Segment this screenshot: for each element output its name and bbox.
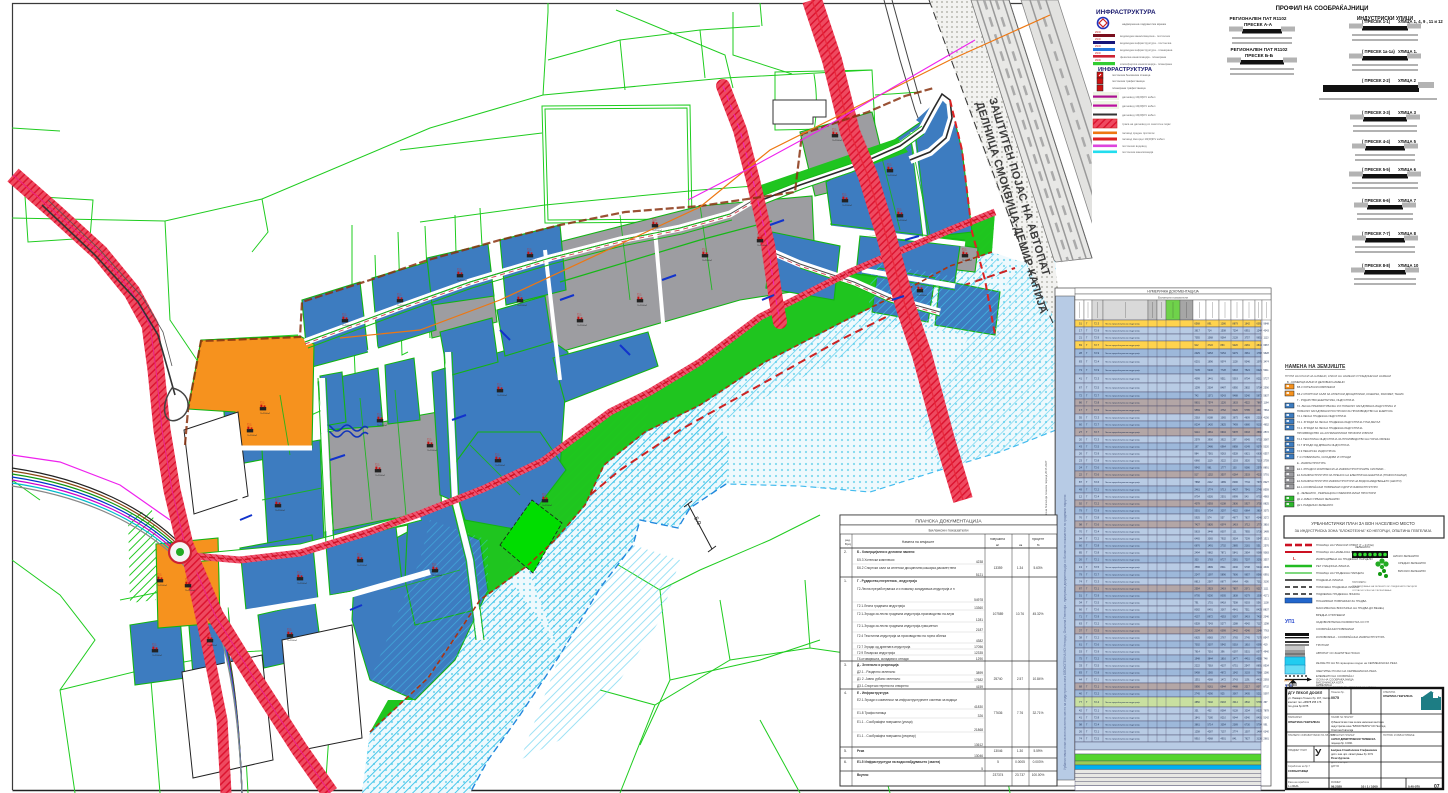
svg-text:6108: 6108 bbox=[1221, 503, 1227, 506]
svg-text:ДАТУМ: ДАТУМ bbox=[1331, 765, 1339, 768]
svg-text:гасовод среден притисок: гасовод среден притисок bbox=[1122, 131, 1155, 135]
svg-text:5547: 5547 bbox=[1257, 538, 1263, 541]
svg-text:4899: 4899 bbox=[1208, 566, 1214, 569]
svg-text:3024: 3024 bbox=[1233, 538, 1239, 541]
svg-text:Г2.1. ЗГРАДИ ЗА ЛЕСНА ГРАДЕЖНА: Г2.1. ЗГРАДИ ЗА ЛЕСНА ГРАДЕЖНА ИНДУСТРИЈ… bbox=[1297, 420, 1380, 424]
svg-text:Г2.7: Г2.7 bbox=[1094, 394, 1100, 398]
svg-text:8999: 8999 bbox=[1233, 496, 1239, 499]
svg-text:%: % bbox=[1037, 543, 1040, 547]
svg-text:4349: 4349 bbox=[1264, 566, 1270, 569]
svg-text:5727: 5727 bbox=[1264, 378, 1270, 381]
svg-text:4652: 4652 bbox=[1264, 424, 1270, 427]
svg-text:Г2.1: Г2.1 bbox=[832, 129, 837, 132]
svg-text:8891: 8891 bbox=[1257, 665, 1263, 668]
svg-text:2533: 2533 bbox=[1245, 474, 1251, 477]
svg-text:СОРАБОТНИЦИ: СОРАБОТНИЦИ bbox=[1288, 769, 1308, 773]
svg-text:1191: 1191 bbox=[1245, 679, 1251, 682]
svg-text:5: 5 bbox=[981, 767, 983, 771]
svg-text:9044: 9044 bbox=[1233, 717, 1239, 720]
svg-text:17056: 17056 bbox=[974, 645, 983, 649]
svg-text:6621: 6621 bbox=[1245, 453, 1251, 456]
svg-text:1774: 1774 bbox=[1208, 489, 1214, 492]
svg-text:фекална канализација - планира: фекална канализација - планирана bbox=[1120, 55, 1166, 59]
svg-text:( ПРЕСЕК 8-8): ( ПРЕСЕК 8-8) bbox=[1362, 263, 1391, 268]
svg-text:1030: 1030 bbox=[1257, 595, 1263, 598]
svg-text:Лесна преработувачка индустриј: Лесна преработувачка индустрија bbox=[1105, 595, 1140, 598]
svg-text:3899: 3899 bbox=[976, 671, 983, 675]
svg-text:8825: 8825 bbox=[1264, 503, 1270, 506]
svg-text:лиценца бр. 0.0321: лиценца бр. 0.0321 bbox=[1331, 742, 1353, 745]
svg-text:Соработник на бр.7: Соработник на бр.7 bbox=[1288, 765, 1310, 768]
svg-text:0.0005: 0.0005 bbox=[1015, 760, 1025, 764]
svg-text:П=2500м²: П=2500м² bbox=[757, 244, 767, 247]
svg-text:Г2.5: Г2.5 bbox=[1094, 565, 1100, 569]
svg-text:Г2.1. ЗГРАДИ ЗА ЛЕСНА ГРАДЕЖНА: Г2.1. ЗГРАДИ ЗА ЛЕСНА ГРАДЕЖНА ИНДУСТРИЈ… bbox=[1297, 426, 1363, 430]
svg-text:1286: 1286 bbox=[1264, 672, 1270, 675]
svg-text:7763: 7763 bbox=[1264, 630, 1270, 633]
svg-text:Г2.9: Г2.9 bbox=[1094, 615, 1100, 619]
svg-text:ПРОФИЛ НА СООБРАЌАЈНИЦИ: ПРОФИЛ НА СООБРАЌАЈНИЦИ bbox=[1276, 4, 1369, 12]
svg-text:7343: 7343 bbox=[1208, 623, 1214, 626]
svg-text:6557: 6557 bbox=[1264, 453, 1270, 456]
svg-text:6636: 6636 bbox=[1257, 453, 1263, 456]
svg-text:402: 402 bbox=[1208, 710, 1213, 713]
svg-text:Г2.1: Г2.1 bbox=[1094, 730, 1100, 734]
svg-text:Г2.6: Г2.6 bbox=[1094, 643, 1100, 647]
svg-text:8672: 8672 bbox=[1208, 616, 1214, 619]
svg-text:1783: 1783 bbox=[1208, 559, 1214, 562]
svg-text:6964: 6964 bbox=[1221, 446, 1227, 449]
svg-text:1113: 1113 bbox=[1264, 337, 1270, 340]
svg-text:4042: 4042 bbox=[1245, 623, 1251, 626]
svg-text:32.71%: 32.71% bbox=[1033, 711, 1044, 715]
svg-text:постоечки водовод: постоечки водовод bbox=[1122, 144, 1147, 148]
svg-text:АВТОПАТ СО ЗАШТИТЕН ПОЈАС: АВТОПАТ СО ЗАШТИТЕН ПОЈАС bbox=[1316, 651, 1360, 655]
svg-text:7117: 7117 bbox=[1257, 623, 1263, 626]
svg-text:1.34: 1.34 bbox=[1017, 566, 1023, 570]
svg-text:Лесна преработувачка индустриј: Лесна преработувачка индустрија bbox=[1105, 503, 1140, 506]
svg-text:П=2500м²: П=2500м² bbox=[527, 259, 537, 262]
svg-text:ПЛАНЕРИ / ИЗРАБОТУВАЧИ НА ПЛАН: ПЛАНЕРИ / ИЗРАБОТУВАЧИ НА ПЛАНОТ bbox=[1288, 734, 1335, 737]
svg-text:Г2-Лесна преработувачка и и по: Г2-Лесна преработувачка и и помалку зага… bbox=[857, 587, 955, 591]
svg-text:Роза Нуртеска: Роза Нуртеска bbox=[1331, 756, 1350, 760]
svg-text:5896: 5896 bbox=[1221, 574, 1227, 577]
svg-text:1696: 1696 bbox=[1208, 361, 1214, 364]
svg-text:ОВЛАСТЕН ПЛАНЕР: ОВЛАСТЕН ПЛАНЕР bbox=[1331, 734, 1355, 737]
svg-text:Г2.3: Г2.3 bbox=[1094, 322, 1100, 326]
svg-text:Лесна преработувачка индустриј: Лесна преработувачка индустрија bbox=[1105, 369, 1140, 372]
svg-text:УЛИЦА 1.: УЛИЦА 1. bbox=[1398, 49, 1417, 54]
svg-text:Б - КОМЕРЦИЈАЛНИ И ДЕЛОВНИ Н: Б - КОМЕРЦИЈАЛНИ И ДЕЛОВНИ НАМЕНИ bbox=[1287, 380, 1345, 384]
svg-text:131: 131 bbox=[1233, 531, 1238, 534]
svg-text:П=2500м²: П=2500м² bbox=[842, 204, 852, 207]
svg-text:103: 103 bbox=[1233, 467, 1238, 470]
svg-text:Г2.4: Г2.4 bbox=[1094, 700, 1100, 704]
svg-text:557: 557 bbox=[1221, 517, 1226, 520]
svg-text:9200: 9200 bbox=[1208, 595, 1214, 598]
svg-text:17682: 17682 bbox=[974, 678, 983, 682]
svg-text:13360: 13360 bbox=[974, 606, 983, 610]
svg-text:4809: 4809 bbox=[1245, 417, 1251, 420]
svg-text:Лесна преработувачка индустриј: Лесна преработувачка индустрија bbox=[1105, 731, 1140, 734]
svg-text:9378: 9378 bbox=[1257, 446, 1263, 449]
svg-text:4762: 4762 bbox=[1221, 409, 1227, 412]
svg-text:3861: 3861 bbox=[1195, 724, 1201, 727]
svg-text:3367: 3367 bbox=[1221, 609, 1227, 612]
svg-text:8045: 8045 bbox=[1245, 439, 1251, 442]
svg-text:13046: 13046 bbox=[994, 749, 1003, 753]
svg-text:2281: 2281 bbox=[1245, 344, 1251, 347]
svg-text:8754: 8754 bbox=[1195, 496, 1201, 499]
svg-text:ЗАШТИТЕН ПОЈАС НА СЕРМЕНИНСКА: ЗАШТИТЕН ПОЈАС НА СЕРМЕНИНСКА РЕКА bbox=[1316, 669, 1377, 673]
svg-text:13046: 13046 bbox=[974, 754, 983, 758]
svg-text:1642: 1642 bbox=[1245, 323, 1251, 326]
svg-text:3014: 3014 bbox=[1233, 701, 1239, 704]
svg-text:П=2500м²: П=2500м² bbox=[577, 324, 587, 327]
svg-text:далновод 10(20)KV кабел: далновод 10(20)KV кабел bbox=[1122, 104, 1156, 108]
svg-text:УЛИЦА 5: УЛИЦА 5 bbox=[1398, 139, 1417, 144]
svg-text:Г2.3: Г2.3 bbox=[1094, 416, 1100, 420]
svg-text:Г2.2: Г2.2 bbox=[1094, 488, 1100, 492]
svg-text:Општина Гевгелија: Општина Гевгелија bbox=[1331, 729, 1354, 732]
svg-text:Г2.1: Г2.1 bbox=[495, 454, 500, 457]
svg-text:8534: 8534 bbox=[1264, 665, 1270, 668]
svg-text:Г2.1: Г2.1 bbox=[497, 384, 502, 387]
svg-text:1007: 1007 bbox=[1245, 731, 1251, 734]
svg-text:9386: 9386 bbox=[1245, 467, 1251, 470]
svg-text:8732: 8732 bbox=[1264, 686, 1270, 689]
svg-text:Лесна преработувачка индустриј: Лесна преработувачка индустрија bbox=[1105, 481, 1140, 484]
svg-text:РЕГИОНАЛЕН ПАТ R1102: РЕГИОНАЛЕН ПАТ R1102 bbox=[1231, 47, 1288, 52]
svg-text:Г2.1: Г2.1 bbox=[297, 572, 302, 575]
svg-text:8813: 8813 bbox=[1195, 581, 1201, 584]
svg-text:5246: 5246 bbox=[1208, 369, 1214, 372]
svg-text:Д1 2 -Јавно урбано зеленило: Д1 2 -Јавно урбано зеленило bbox=[857, 677, 900, 681]
svg-text:НУМЕРИЧКА ДОКУМЕНТАЦИЈА: НУМЕРИЧКА ДОКУМЕНТАЦИЈА bbox=[1147, 290, 1199, 294]
svg-text:7932: 7932 bbox=[1221, 538, 1227, 541]
svg-text:П=2500м²: П=2500м² bbox=[432, 574, 442, 577]
svg-text:54978: 54978 bbox=[974, 598, 983, 602]
svg-text:Е1.8 Трафостаница: Е1.8 Трафостаница bbox=[857, 711, 886, 715]
svg-text:Лесна преработувачка индустриј: Лесна преработувачка индустрија bbox=[1105, 409, 1140, 412]
svg-text:469: 469 bbox=[1257, 409, 1262, 412]
svg-text:8311: 8311 bbox=[1221, 566, 1227, 569]
svg-text:Лесна преработувачка индустриј: Лесна преработувачка индустрија bbox=[1105, 574, 1140, 577]
svg-text:1371: 1371 bbox=[1208, 395, 1214, 398]
svg-text:Лесна преработувачка индустриј: Лесна преработувачка индустрија bbox=[1105, 323, 1140, 326]
svg-text:Лесна преработувачка индустриј: Лесна преработувачка индустрија bbox=[1105, 337, 1140, 340]
svg-text:1633: 1633 bbox=[1233, 402, 1239, 405]
svg-text:7018: 7018 bbox=[1208, 665, 1214, 668]
svg-text:Лесна преработувачка индустриј: Лесна преработувачка индустрија bbox=[1105, 361, 1140, 364]
svg-text:Г2.8: Г2.8 bbox=[1094, 716, 1100, 720]
svg-text:Лесна преработувачка индустриј: Лесна преработувачка индустрија bbox=[1105, 637, 1140, 640]
svg-text:6676: 6676 bbox=[1195, 545, 1201, 548]
svg-text:Г2.1: Г2.1 bbox=[917, 284, 922, 287]
svg-text:П=2500м²: П=2500м² bbox=[887, 174, 897, 177]
svg-text:7002: 7002 bbox=[1195, 644, 1201, 647]
svg-text:8027: 8027 bbox=[1264, 481, 1270, 484]
svg-text:Г2.1: Г2.1 bbox=[842, 194, 847, 197]
svg-text:Лесна преработувачка индустриј: Лесна преработувачка индустрија bbox=[1105, 330, 1140, 333]
svg-text:УП1: УП1 bbox=[1285, 619, 1295, 625]
svg-text:5794: 5794 bbox=[1257, 724, 1263, 727]
svg-text:748: 748 bbox=[1264, 658, 1269, 661]
svg-text:1042: 1042 bbox=[1233, 672, 1239, 675]
svg-text:Г2.2: Г2.2 bbox=[1094, 502, 1100, 506]
svg-text:6095: 6095 bbox=[1257, 644, 1263, 647]
svg-text:3222: 3222 bbox=[1221, 460, 1227, 463]
svg-text:Лесна преработувачка индустриј: Лесна преработувачка индустрија bbox=[1105, 424, 1140, 427]
svg-text:5942: 5942 bbox=[1221, 644, 1227, 647]
svg-text:1773: 1773 bbox=[1257, 524, 1263, 527]
svg-text:Г2.7 ЗГРАДИ ОД ДРВНАТА ИНДУСТР: Г2.7 ЗГРАДИ ОД ДРВНАТА ИНДУСТРИЈА bbox=[1297, 443, 1350, 447]
svg-text:Е2.1 ЗГРАДИ И КОМПЛЕКСИ НА ИНФ: Е2.1 ЗГРАДИ И КОМПЛЕКСИ НА ИНФРАСТРУКТУР… bbox=[1297, 467, 1386, 471]
svg-text:2825: 2825 bbox=[1221, 424, 1227, 427]
svg-text:Г2.1: Г2.1 bbox=[1094, 587, 1100, 591]
svg-text:6540: 6540 bbox=[1245, 717, 1251, 720]
svg-text:8704: 8704 bbox=[1245, 378, 1251, 381]
svg-text:Г2.1: Г2.1 bbox=[1094, 678, 1100, 682]
svg-text:3103: 3103 bbox=[1245, 672, 1251, 675]
svg-text:4099: 4099 bbox=[1195, 378, 1201, 381]
svg-text:Г2.1: Г2.1 bbox=[702, 249, 707, 252]
svg-text:5: 5 bbox=[997, 760, 999, 764]
svg-text:7857: 7857 bbox=[1233, 588, 1239, 591]
svg-text:6.: 6. bbox=[844, 760, 847, 764]
svg-text:П=2500м²: П=2500м² bbox=[962, 259, 972, 262]
svg-text:Билјана Стамболиска Стефановск: Билјана Стамболиска Стефановска bbox=[1331, 748, 1377, 752]
svg-text:П=2500м²: П=2500м² bbox=[157, 584, 167, 587]
svg-text:Г2.1: Г2.1 bbox=[887, 164, 892, 167]
svg-text:3844: 3844 bbox=[1208, 658, 1214, 661]
svg-text:2112: 2112 bbox=[1208, 481, 1214, 484]
svg-text:4.: 4. bbox=[844, 691, 847, 695]
svg-text:9862: 9862 bbox=[1208, 552, 1214, 555]
svg-text:Урбанистички план за вон насел: Урбанистички план за вон населено место … bbox=[1331, 721, 1384, 724]
svg-text:333: 333 bbox=[1195, 559, 1200, 562]
svg-text:Д - Зеленило и рекреација: Д - Зеленило и рекреација bbox=[857, 663, 899, 667]
svg-text:891: 891 bbox=[1208, 323, 1213, 326]
svg-text:Лесна преработувачка индустриј: Лесна преработувачка индустрија bbox=[1105, 453, 1140, 456]
svg-text:ВИСОКО ЗЕЛЕНИЛО: ВИСОКО ЗЕЛЕНИЛО bbox=[1398, 569, 1427, 573]
svg-text:1111: 1111 bbox=[1264, 588, 1269, 591]
svg-text:Б6.2 СПОРТСКИ САЛИ ЗА АТЛЕТСКИ: Б6.2 СПОРТСКИ САЛИ ЗА АТЛЕТСКИ ДИСЦИПЛИН… bbox=[1297, 392, 1404, 396]
svg-text:2128: 2128 bbox=[1233, 337, 1239, 340]
svg-text:09.2020: 09.2020 bbox=[1331, 785, 1342, 789]
svg-text:ПОМАЛКУ ЗАГАДУВАЧКИ ПОСТРОЈКИ: ПОМАЛКУ ЗАГАДУВАЧКИ ПОСТРОЈКИ ЗА ПРОИЗВО… bbox=[1297, 409, 1393, 413]
svg-text:Г2.1: Г2.1 bbox=[427, 439, 432, 442]
svg-text:419: 419 bbox=[1264, 644, 1269, 647]
svg-text:3617: 3617 bbox=[1195, 330, 1201, 333]
svg-text:1551: 1551 bbox=[1195, 679, 1201, 682]
svg-text:Г2.4: Г2.4 bbox=[1094, 495, 1100, 499]
svg-text:3880: 3880 bbox=[1257, 431, 1263, 434]
svg-text:297: 297 bbox=[1233, 439, 1238, 442]
svg-text:6528: 6528 bbox=[1195, 623, 1201, 626]
svg-text:7427: 7427 bbox=[1195, 524, 1201, 527]
svg-text:СООБРАЌАЈНИ ПОВРШИНИ: СООБРАЌАЈНИ ПОВРШИНИ bbox=[1316, 627, 1354, 631]
svg-text:2486: 2486 bbox=[1208, 446, 1214, 449]
svg-text:5277: 5277 bbox=[1221, 623, 1227, 626]
svg-text:4159: 4159 bbox=[976, 685, 983, 689]
svg-text:ЗАДОВОЛИТЕЛНА РАЗРАБОТКА СО УП: ЗАДОВОЛИТЕЛНА РАЗРАБОТКА СО УП bbox=[1316, 620, 1369, 624]
svg-text:1244: 1244 bbox=[1257, 330, 1263, 333]
svg-text:2093: 2093 bbox=[1264, 679, 1270, 682]
svg-text:Лесна преработувачка индустриј: Лесна преработувачка индустрија bbox=[1105, 352, 1140, 355]
svg-text:ВРЕДНА СТРАТЕШКИ: ВРЕДНА СТРАТЕШКИ bbox=[1316, 613, 1345, 617]
svg-text:( ПРЕСЕК 2-2): ( ПРЕСЕК 2-2) bbox=[1362, 78, 1391, 83]
svg-text:Г2.2: Г2.2 bbox=[1094, 692, 1100, 696]
svg-text:Г2.3: Г2.3 bbox=[1094, 580, 1100, 584]
svg-text:Г2.1.ЛЕСНА ГРАДЕЖНА ИНДУСТРИЈА: Г2.1.ЛЕСНА ГРАДЕЖНА ИНДУСТРИЈА bbox=[1297, 414, 1346, 418]
svg-text:9657: 9657 bbox=[1245, 574, 1251, 577]
svg-text:Лесна преработувачка индустриј: Лесна преработувачка индустрија bbox=[1105, 658, 1140, 661]
svg-text:Г2.5: Г2.5 bbox=[1094, 629, 1100, 633]
svg-text:9910: 9910 bbox=[1195, 738, 1201, 741]
svg-text:5785: 5785 bbox=[1245, 409, 1251, 412]
svg-text:1290: 1290 bbox=[976, 657, 983, 661]
svg-text:Г2.1: Г2.1 bbox=[287, 629, 292, 632]
svg-text:3100: 3100 bbox=[1264, 581, 1270, 584]
svg-text:НИСКО ЗЕЛЕНИЛО: НИСКО ЗЕЛЕНИЛО bbox=[1393, 554, 1420, 558]
svg-text:4451: 4451 bbox=[1245, 658, 1251, 661]
svg-text:Г2.9 Пекарска индустрија: Г2.9 Пекарска индустрија bbox=[857, 651, 895, 655]
svg-text:4641: 4641 bbox=[1233, 609, 1239, 612]
svg-text:УЛИЦА 1, 4, 9 , 11 и 12: УЛИЦА 1, 4, 9 , 11 и 12 bbox=[1398, 19, 1443, 24]
svg-text:8083: 8083 bbox=[1208, 637, 1214, 640]
svg-text:Г2.9: Г2.9 bbox=[1094, 329, 1100, 333]
svg-text:3204: 3204 bbox=[1245, 710, 1251, 713]
svg-text:Лесна преработувачка индустриј: Лесна преработувачка индустрија bbox=[1105, 489, 1140, 492]
svg-text:ТРОТОАР: ТРОТОАР bbox=[1316, 643, 1329, 647]
svg-text:Г2.1: Г2.1 bbox=[527, 249, 532, 252]
svg-text:9220: 9220 bbox=[1233, 344, 1239, 347]
svg-text:4672: 4672 bbox=[1221, 672, 1227, 675]
svg-text:П=2500м²: П=2500м² bbox=[832, 139, 842, 142]
svg-text:Г2.7: Г2.7 bbox=[1094, 343, 1100, 347]
svg-text:4661: 4661 bbox=[1208, 431, 1214, 434]
svg-text:2029: 2029 bbox=[1195, 352, 1201, 355]
svg-text:Г2.4: Г2.4 bbox=[1094, 723, 1100, 727]
svg-text:СОГЛАСНО ЧЛЕН ЗА ОЗЕЛЕНУВАЊЕ: СОГЛАСНО ЧЛЕН ЗА ОЗЕЛЕНУВАЊЕ bbox=[1352, 589, 1392, 592]
svg-text:3136: 3136 bbox=[1257, 738, 1263, 741]
svg-text:2389: 2389 bbox=[1233, 724, 1239, 727]
svg-text:4555: 4555 bbox=[1257, 658, 1263, 661]
svg-text:1076: 1076 bbox=[1257, 361, 1263, 364]
svg-text:3.: 3. bbox=[844, 663, 847, 667]
svg-text:2630: 2630 bbox=[1208, 630, 1214, 633]
svg-text:5978: 5978 bbox=[1233, 431, 1239, 434]
svg-text:ПРЕСЕК Б-Б: ПРЕСЕК Б-Б bbox=[1245, 53, 1274, 58]
svg-text:Ø200: Ø200 bbox=[1095, 38, 1102, 41]
svg-text:Г2.5: Г2.5 bbox=[1094, 601, 1100, 605]
svg-text:9074: 9074 bbox=[1221, 361, 1227, 364]
svg-text:8384: 8384 bbox=[1221, 710, 1227, 713]
svg-text:100.00%: 100.00% bbox=[1032, 773, 1045, 777]
svg-text:П=2500м²: П=2500м² bbox=[152, 654, 162, 657]
svg-text:9569: 9569 bbox=[1195, 409, 1201, 412]
svg-text:3354: 3354 bbox=[1221, 724, 1227, 727]
svg-text:2219: 2219 bbox=[1257, 417, 1263, 420]
svg-text:3061: 3061 bbox=[1245, 352, 1251, 355]
svg-text:2461: 2461 bbox=[1195, 489, 1201, 492]
svg-text:841: 841 bbox=[1233, 738, 1238, 741]
svg-text:3900: 3900 bbox=[1208, 439, 1214, 442]
svg-text:Д1 2-ЈАВНО УРБАНО ЗЕЛЕНИЛО: Д1 2-ЈАВНО УРБАНО ЗЕЛЕНИЛО bbox=[1297, 497, 1340, 501]
svg-text:7524: 7524 bbox=[1245, 369, 1251, 372]
svg-text:3297: 3297 bbox=[1221, 510, 1227, 513]
svg-text:1128: 1128 bbox=[1233, 361, 1239, 364]
svg-text:МАКСИМАЛНА ВИСОЧИНА НА ГРАДБА: МАКСИМАЛНА ВИСОЧИНА НА ГРАДБА ДО ВЕНЕЦ bbox=[1316, 606, 1385, 610]
svg-text:77636: 77636 bbox=[994, 711, 1003, 715]
svg-text:8795: 8795 bbox=[1195, 595, 1201, 598]
svg-text:Г2.1: Г2.1 bbox=[962, 249, 967, 252]
svg-text:ПОДЗЕМНА ГРАДЕЖНА ЛИНИЈА: ПОДЗЕМНА ГРАДЕЖНА ЛИНИЈА bbox=[1316, 592, 1360, 596]
svg-text:Г2.1: Г2.1 bbox=[432, 564, 437, 567]
svg-text:1258: 1258 bbox=[1195, 731, 1201, 734]
svg-text:П=2500м²: П=2500м² bbox=[542, 504, 552, 507]
svg-text:Лесна преработувачка индустриј: Лесна преработувачка индустрија bbox=[1105, 402, 1140, 405]
svg-text:5240: 5240 bbox=[1245, 395, 1251, 398]
svg-text:9279: 9279 bbox=[1233, 352, 1239, 355]
svg-text:Лесна преработувачка индустриј: Лесна преработувачка индустрија bbox=[1105, 623, 1140, 626]
svg-text:Д2.1 - Разделно зеленило: Д2.1 - Разделно зеленило bbox=[857, 670, 896, 674]
svg-text:Фаза на изработка: Фаза на изработка bbox=[1288, 781, 1309, 784]
svg-text:П=2500м²: П=2500м² bbox=[375, 474, 385, 477]
svg-text:4940: 4940 bbox=[1264, 651, 1270, 654]
svg-text:2018: 2018 bbox=[1195, 417, 1201, 420]
svg-text:6091: 6091 bbox=[1257, 323, 1263, 326]
svg-text:ОПШТИНА ГЕВГЕЛИЈА: ОПШТИНА ГЕВГЕЛИЈА bbox=[1383, 694, 1413, 698]
svg-text:СРЕДНО ЗЕЛЕНИЛО: СРЕДНО ЗЕЛЕНИЛО bbox=[1398, 561, 1427, 565]
svg-text:УЛИЦА 3: УЛИЦА 3 bbox=[1398, 110, 1417, 115]
svg-text:2034: 2034 bbox=[1208, 387, 1214, 390]
svg-text:Лесна преработувачка индустриј: Лесна преработувачка индустрија bbox=[1105, 724, 1140, 727]
svg-text:1838: 1838 bbox=[1233, 595, 1239, 598]
svg-text:Г2.8: Г2.8 bbox=[1094, 544, 1100, 548]
svg-text:Лесна преработувачка индустриј: Лесна преработувачка индустрија bbox=[1105, 552, 1140, 555]
svg-text:4171: 4171 bbox=[1264, 595, 1270, 598]
svg-text:водоводна инфраструктура - пос: водоводна инфраструктура - постоечка bbox=[1120, 41, 1172, 45]
svg-text:7734: 7734 bbox=[1245, 481, 1251, 484]
svg-text:863: 863 bbox=[1221, 344, 1226, 347]
svg-text:4390: 4390 bbox=[1208, 693, 1214, 696]
svg-text:П=2500м²: П=2500м² bbox=[897, 219, 907, 222]
svg-text:4353: 4353 bbox=[1221, 616, 1227, 619]
svg-text:2501: 2501 bbox=[1221, 496, 1227, 499]
svg-text:5142: 5142 bbox=[1264, 717, 1270, 720]
svg-text:107589: 107589 bbox=[993, 612, 1004, 616]
svg-text:9488: 9488 bbox=[1233, 395, 1239, 398]
svg-text:714: 714 bbox=[1208, 330, 1213, 333]
svg-text:7970: 7970 bbox=[1257, 481, 1263, 484]
svg-text:Лесна преработувачка индустриј: Лесна преработувачка индустрија bbox=[1105, 545, 1140, 548]
svg-text:8752: 8752 bbox=[1257, 496, 1263, 499]
svg-text:УЛИЦА 10: УЛИЦА 10 bbox=[1398, 263, 1419, 268]
svg-text:Г2.1: Г2.1 bbox=[457, 269, 462, 272]
svg-text:8211: 8211 bbox=[1257, 378, 1263, 381]
svg-text:167: 167 bbox=[1195, 446, 1200, 449]
svg-text:Лесна преработувачка индустриј: Лесна преработувачка индустрија bbox=[1105, 460, 1140, 463]
svg-text:3922: 3922 bbox=[1221, 439, 1227, 442]
svg-text:ИНФРАСТРУКТУРА: ИНФРАСТРУКТУРА bbox=[1096, 9, 1156, 16]
svg-text:326: 326 bbox=[978, 714, 984, 718]
svg-text:УЛИЦА 7: УЛИЦА 7 bbox=[1398, 198, 1417, 203]
svg-text:1420: 1420 bbox=[1208, 424, 1214, 427]
svg-text:2547: 2547 bbox=[1245, 665, 1251, 668]
svg-text:7311: 7311 bbox=[1257, 581, 1263, 584]
